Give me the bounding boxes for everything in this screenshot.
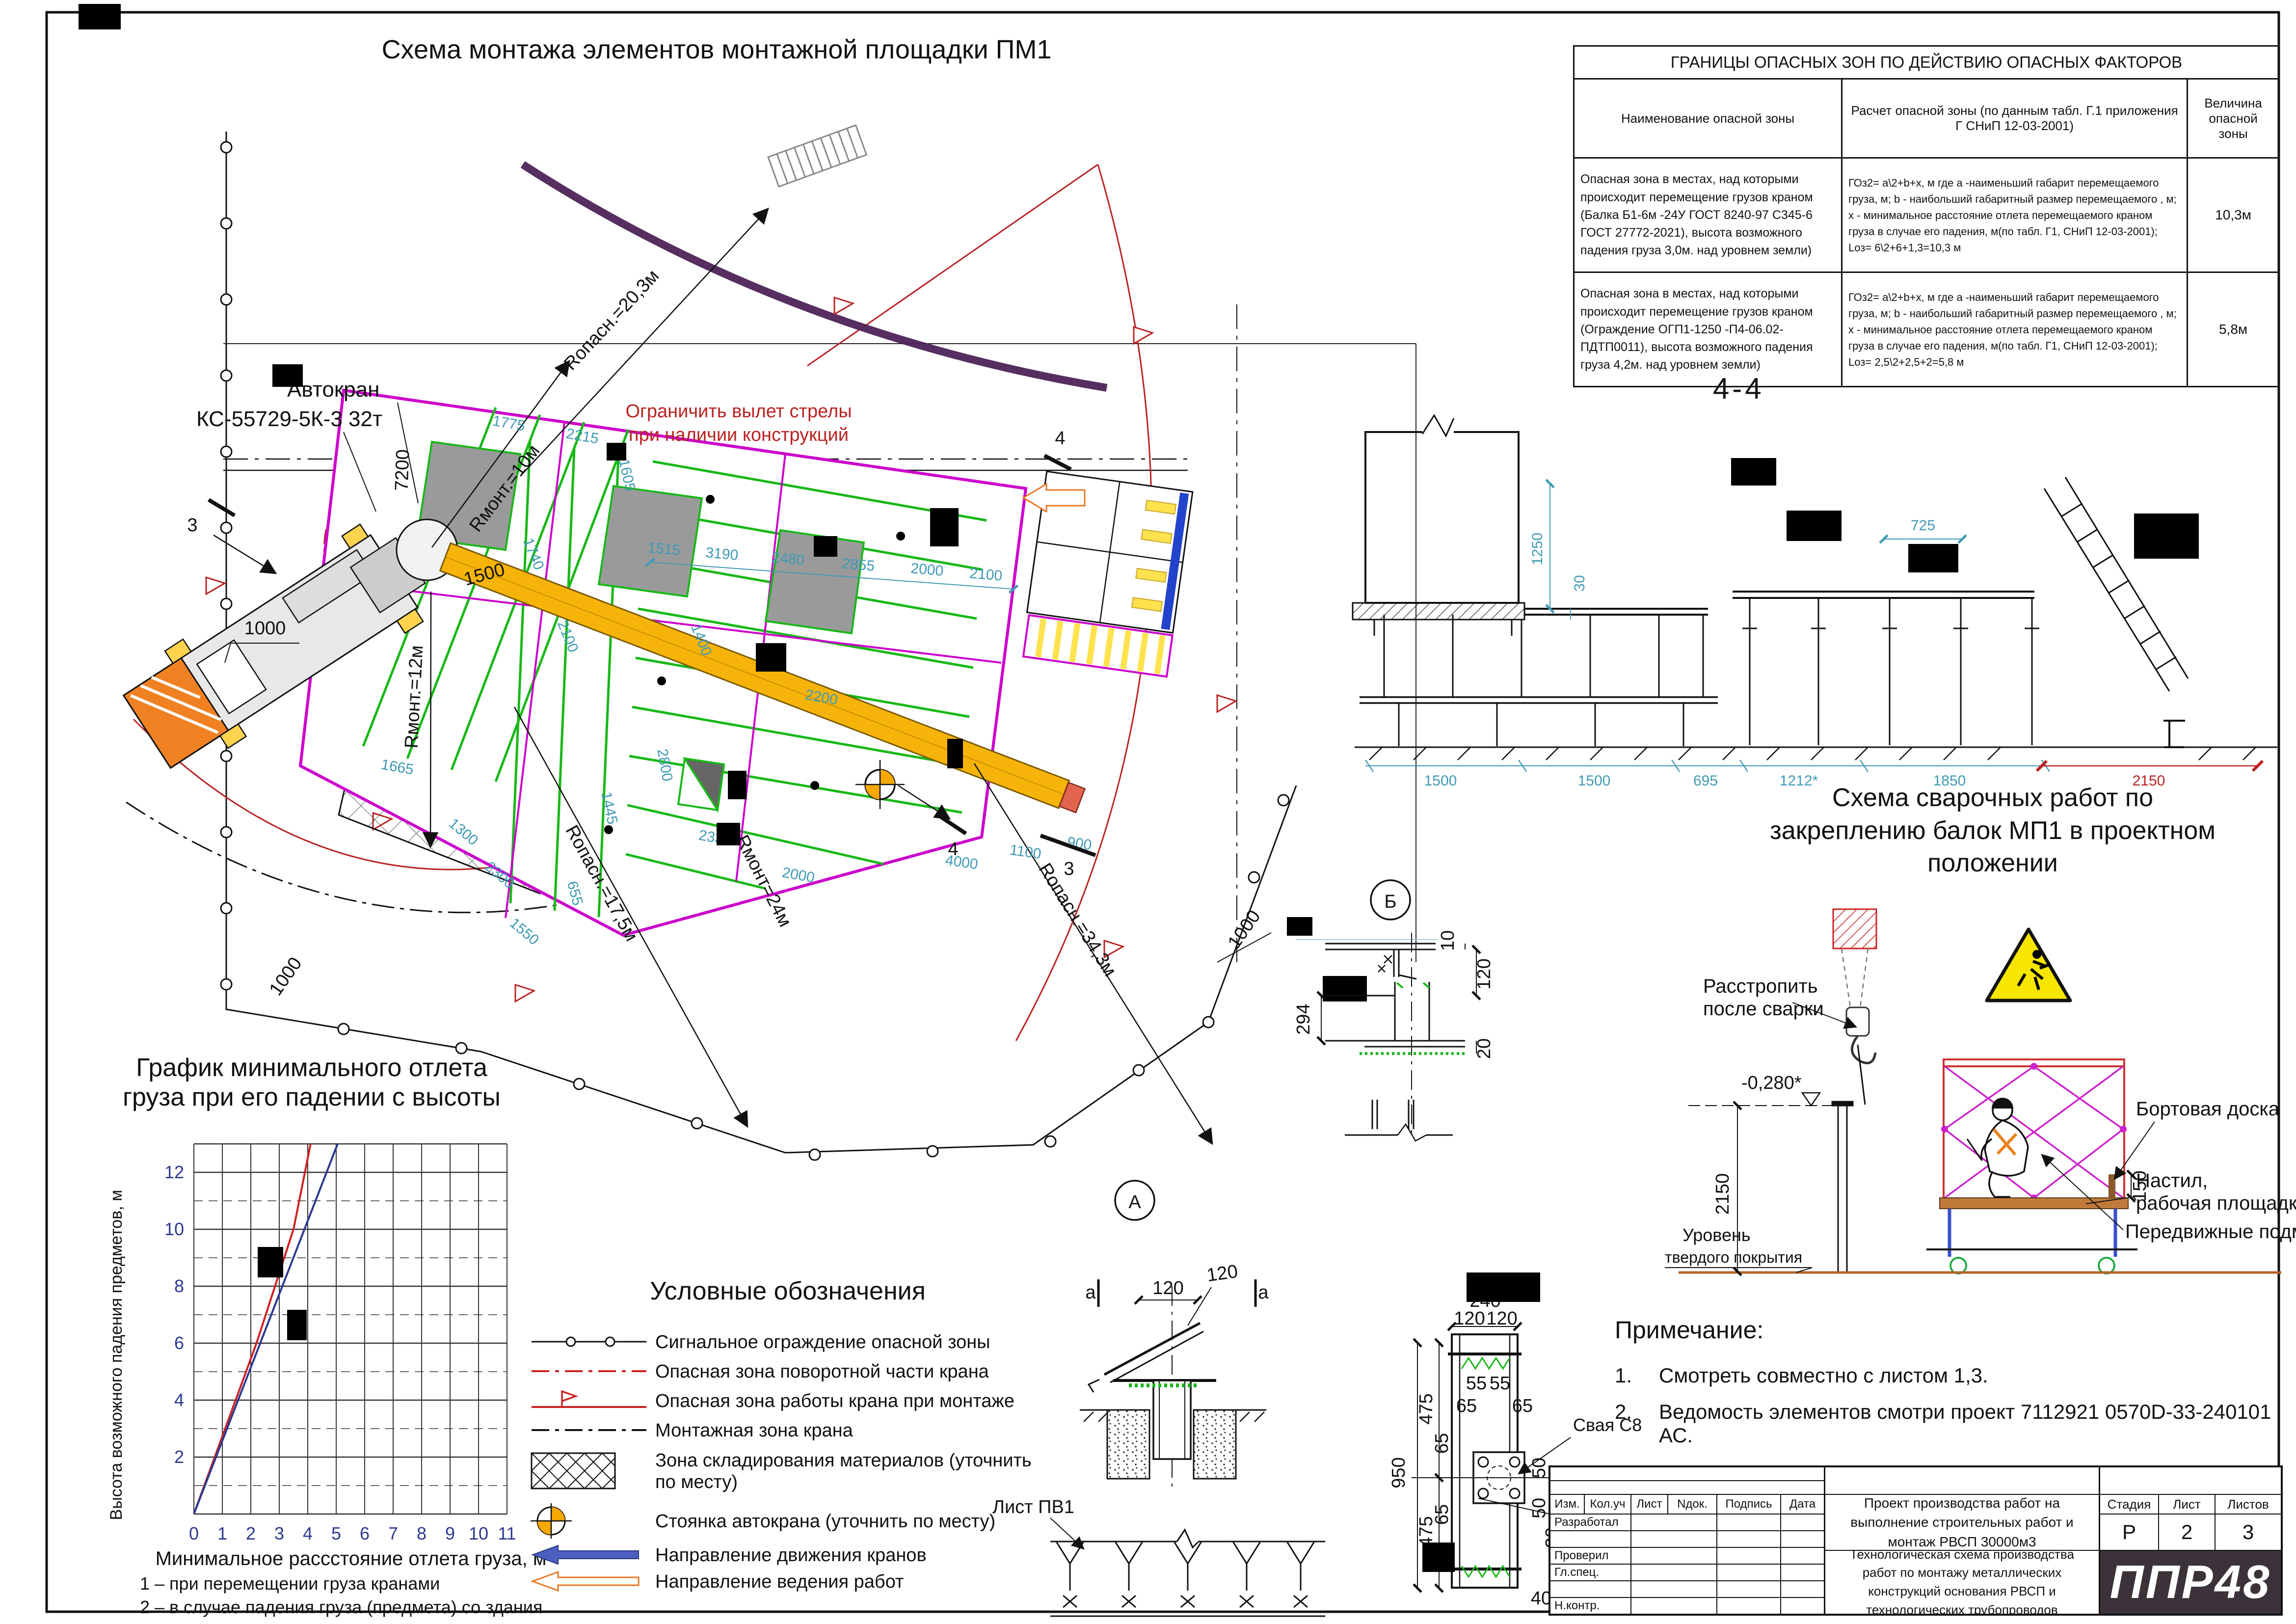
svg-text:3: 3 <box>187 515 197 536</box>
svg-text:8: 8 <box>174 1276 184 1296</box>
svg-text:КС-55729-5К-3 32т: КС-55729-5К-3 32т <box>196 407 382 431</box>
note-number: 1. <box>1615 1364 1659 1387</box>
svg-text:Ограничить вылет стрелы: Ограничить вылет стрелы <box>625 401 852 422</box>
crane-parking-icon <box>528 1502 655 1542</box>
svg-text:20: 20 <box>1474 1038 1495 1059</box>
svg-text:5: 5 <box>331 1523 341 1543</box>
svg-text:120: 120 <box>1205 1261 1239 1286</box>
svg-text:1000: 1000 <box>266 953 306 999</box>
svg-text:120: 120 <box>1152 1278 1183 1299</box>
svg-text:6: 6 <box>360 1523 370 1543</box>
svg-text:725: 725 <box>1911 517 1935 534</box>
tb-col-ndok: Nдок. <box>1668 1495 1717 1515</box>
legend-label: Опасная зона поворотной части крана <box>655 1361 989 1383</box>
storage-zone-icon <box>528 1446 655 1498</box>
danger-zones-table: ГРАНИЦЫ ОПАСНЫХ ЗОН ПО ДЕЙСТВИЮ ОПАСНЫХ … <box>1573 45 2280 387</box>
svg-text:2000: 2000 <box>910 560 944 579</box>
svg-text:Б: Б <box>1385 892 1397 912</box>
tb-row-ncontrol: Н.контр. <box>1550 1598 1631 1614</box>
svg-text:10: 10 <box>1438 930 1458 951</box>
svg-text:55: 55 <box>1466 1373 1487 1394</box>
svg-text:1550: 1550 <box>507 915 542 948</box>
chart-line-building <box>194 1144 338 1514</box>
svg-text:2150: 2150 <box>1712 1173 1733 1215</box>
hook-assembly <box>1833 909 1876 1105</box>
svg-text:10: 10 <box>469 1523 488 1543</box>
svg-text:7: 7 <box>388 1523 398 1543</box>
tb-sheets-value: 3 <box>2216 1515 2281 1551</box>
note-item: 2. Ведомость элементов смотри проект 711… <box>1615 1400 2277 1447</box>
col-header: Расчет опасной зоны (по данным табл. Г.1… <box>1842 79 2188 158</box>
svg-text:2100: 2100 <box>969 565 1003 584</box>
crane-movement-arrow-icon <box>528 1543 655 1570</box>
svg-text:1100: 1100 <box>1009 842 1042 863</box>
crane-swing-zone-icon <box>528 1358 655 1387</box>
svg-text:120: 120 <box>1474 958 1495 989</box>
svg-text:8: 8 <box>417 1523 427 1543</box>
dim-label: Rопасн.=34,3м <box>1035 860 1121 980</box>
tb-col-izm: Изм. <box>1550 1495 1585 1515</box>
montage-zone-icon <box>528 1417 655 1446</box>
svg-text:1000: 1000 <box>244 618 286 639</box>
svg-text:2855: 2855 <box>841 555 875 574</box>
legend-item: Опасная зона работы крана при монтаже <box>528 1388 1015 1415</box>
svg-text:1000: 1000 <box>1224 906 1265 952</box>
tb-row-checked: Проверил <box>1550 1548 1631 1565</box>
svg-text:Передвижные подмости: Передвижные подмости <box>2125 1221 2296 1243</box>
note-text: Смотреть совместно с листом 1,3. <box>1659 1364 1988 1387</box>
legend-label: Сигнальное ограждение опасной зоны <box>655 1332 990 1353</box>
chart-title-line1: График минимального отлета <box>136 1054 487 1082</box>
svg-text:3: 3 <box>274 1523 284 1543</box>
svg-text:3: 3 <box>1064 859 1074 879</box>
chart-title-line2: груза при его падении с высоты <box>123 1083 501 1111</box>
tb-stage-value: Р <box>2100 1515 2159 1551</box>
warning-sign-icon <box>1987 929 2070 1001</box>
detail-b: 10 120 294 20 <box>1287 917 1495 1141</box>
tb-row-developed: Разработал <box>1550 1515 1631 1531</box>
zone-value: 10,3м <box>2188 158 2279 272</box>
svg-text:120: 120 <box>1486 1308 1517 1329</box>
svg-text:120: 120 <box>1454 1308 1485 1329</box>
tb-sheet-label: Лист <box>2159 1495 2216 1515</box>
svg-text:9: 9 <box>445 1523 455 1543</box>
ladder-icon <box>768 125 866 187</box>
svg-text:Уровень: Уровень <box>1682 1225 1751 1245</box>
legend-label: Направление ведения работ <box>655 1571 904 1593</box>
svg-text:12: 12 <box>164 1162 184 1182</box>
danger-zones-table-block: ГРАНИЦЫ ОПАСНЫХ ЗОН ПО ДЕЙСТВИЮ ОПАСНЫХ … <box>1573 45 2280 387</box>
legend-item: Сигнальное ограждение опасной зоны <box>528 1329 990 1356</box>
svg-text:Настил,: Настил, <box>2136 1170 2208 1191</box>
notes-title: Примечание: <box>1615 1316 2277 1344</box>
legend-item: Монтажная зона крана <box>528 1418 853 1444</box>
svg-text:65: 65 <box>1432 1433 1452 1454</box>
svg-text:4: 4 <box>303 1523 313 1543</box>
chart-note-2: 2 – в случае падения груза (предмета) со… <box>140 1597 542 1617</box>
svg-text:55: 55 <box>1490 1373 1510 1394</box>
chart-y-ticks: 2 4 6 8 10 12 <box>164 1162 184 1467</box>
svg-text:475: 475 <box>1416 1393 1437 1424</box>
svg-text:1250: 1250 <box>1529 533 1546 566</box>
title-block: Изм. Кол.уч Лист Nдок. Подпись Дата Разр… <box>1548 1465 2283 1616</box>
table-row: Опасная зона в местах, над которыми прои… <box>1574 272 2279 387</box>
svg-text:50: 50 <box>1529 1458 1549 1478</box>
svg-text:695: 695 <box>1693 773 1718 789</box>
svg-text:3190: 3190 <box>705 544 739 564</box>
col-header: Величина опасной зоны <box>2188 79 2279 158</box>
tb-col-podpis: Подпись <box>1717 1495 1781 1515</box>
plan-title: Схема монтажа элементов монтажной площад… <box>373 34 1060 65</box>
svg-text:1500: 1500 <box>1578 773 1611 789</box>
tb-col-data: Дата <box>1781 1495 1825 1515</box>
tb-stage-label: Стадия <box>2100 1495 2159 1515</box>
svg-text:Расстропить: Расстропить <box>1703 975 1818 997</box>
chart-grid <box>194 1144 507 1514</box>
detail-a-dims: а а 120 120 <box>1085 1261 1269 1326</box>
zone-name: Опасная зона в местах, над которыми прои… <box>1574 272 1842 387</box>
tb-sheet-value: 2 <box>2159 1515 2216 1551</box>
work-direction-arrow-icon <box>528 1569 655 1596</box>
svg-text:-0,280*: -0,280* <box>1741 1073 1802 1093</box>
svg-text:50: 50 <box>1529 1498 1549 1518</box>
svg-text:1500: 1500 <box>1424 773 1457 789</box>
svg-text:2: 2 <box>174 1447 184 1467</box>
chart-note-1: 1 – при перемещении груза кранами <box>140 1573 440 1594</box>
svg-text:2480: 2480 <box>771 549 805 568</box>
legend-item: Зона складирования материалов (уточнить … <box>528 1447 1048 1496</box>
note-item: 1. Смотреть совместно с листом 1,3. <box>1615 1364 2277 1387</box>
zone-name: Опасная зона в местах, над которыми прои… <box>1574 158 1842 272</box>
svg-text:4: 4 <box>174 1390 184 1410</box>
svg-text:а: а <box>1258 1282 1269 1303</box>
legend-block: Условные обозначения Сигнальное огражден… <box>528 1276 1048 1596</box>
legend-item: Опасная зона поворотной части крана <box>528 1359 989 1385</box>
svg-text:А: А <box>1128 1192 1141 1213</box>
company-logo: ППР48 <box>2100 1551 2281 1614</box>
svg-text:30: 30 <box>1572 575 1588 591</box>
welding-title-line: положении <box>1728 847 2258 880</box>
zone-calc: ГОз2= а\2+b+х, м где а -наименьший габар… <box>1842 158 2188 272</box>
note-number: 2. <box>1615 1400 1659 1447</box>
svg-text:4: 4 <box>948 839 958 860</box>
chart-y-label: Высота возможного падения предметов, м <box>107 1190 126 1520</box>
legend-title: Условные обозначения <box>528 1276 1048 1306</box>
svg-text:0: 0 <box>189 1523 199 1543</box>
chart-x-ticks: 01 23 45 67 89 1011 <box>189 1523 516 1543</box>
svg-text:65: 65 <box>1456 1396 1477 1416</box>
tb-row-chief: Гл.спец. <box>1550 1565 1631 1581</box>
svg-text:2: 2 <box>246 1523 256 1543</box>
tb-project-name: Проект производства работ на выполнение … <box>1825 1495 2100 1551</box>
legend-item: Стоянка автокрана (уточнить по месту) <box>528 1503 995 1541</box>
fall-distance-chart: График минимального отлета груза при его… <box>83 1051 555 1623</box>
legend-label: Опасная зона работы крана при монтаже <box>655 1391 1015 1412</box>
welding-title-line: Схема сварочных работ по <box>1728 782 2258 814</box>
legend-label: Монтажная зона крана <box>655 1420 853 1442</box>
svg-text:6: 6 <box>174 1333 184 1353</box>
svg-text:1515: 1515 <box>647 540 681 559</box>
legend-item: Направление ведения работ <box>528 1570 904 1595</box>
welding-labels: Расстропить после сварки -0,280* 2150 Ур… <box>1665 975 2296 1272</box>
zone-calc: ГОз2= а\2+b+х, м где а -наименьший габар… <box>1842 272 2188 387</box>
tb-sheets-label: Листов <box>2216 1495 2281 1515</box>
svg-text:65: 65 <box>1512 1396 1533 1416</box>
signal-fence-icon <box>528 1328 655 1357</box>
section-redactions <box>1731 458 2199 572</box>
legend-item: Направление движения кранов <box>528 1543 927 1568</box>
tb-col-koluch: Кол.уч <box>1585 1495 1631 1515</box>
svg-text:950: 950 <box>1388 1457 1409 1488</box>
legend-label: Стоянка автокрана (уточнить по месту) <box>655 1511 995 1533</box>
welder-figure <box>1967 1098 2028 1197</box>
svg-text:Бортовая доска: Бортовая доска <box>2136 1098 2280 1120</box>
zone-value: 5,8м <box>2188 272 2279 387</box>
boom-limit-note: Ограничить вылет стрелы при наличии конс… <box>625 401 852 445</box>
welding-scheme: Расстропить после сварки -0,280* 2150 Ур… <box>1665 909 2296 1273</box>
detail-markers: А Б <box>1115 880 1410 1220</box>
table-title: ГРАНИЦЫ ОПАСНЫХ ЗОН ПО ДЕЙСТВИЮ ОПАСНЫХ … <box>1574 46 2279 79</box>
svg-text:10: 10 <box>164 1219 184 1239</box>
welding-title-line: закреплению балок МП1 в проектном <box>1728 814 2258 847</box>
svg-text:7200: 7200 <box>392 449 414 491</box>
crane-work-zone-icon <box>528 1387 655 1416</box>
mobile-scaffold <box>1926 1059 2137 1273</box>
tb-col-list: Лист <box>1631 1495 1668 1515</box>
svg-text:1: 1 <box>217 1523 227 1543</box>
svg-text:рабочая площадка: рабочая площадка <box>2136 1192 2296 1214</box>
dim-label: Rопасн.=20,3м <box>560 266 663 374</box>
svg-text:а: а <box>1085 1282 1096 1303</box>
svg-text:11: 11 <box>498 1523 516 1543</box>
svg-text:65: 65 <box>1432 1504 1452 1525</box>
svg-text:при наличии конструкций: при наличии конструкций <box>629 425 849 445</box>
col-header: Наименование опасной зоны <box>1574 79 1842 158</box>
notes-block: Примечание: 1. Смотреть совместно с лист… <box>1615 1316 2277 1447</box>
detail-a: а а 120 120 <box>1080 1261 1269 1492</box>
tb-doc-title: Технологическая схема производства работ… <box>1825 1551 2100 1614</box>
chart-x-label: Минимальное рассстояние отлета груза, м <box>156 1548 547 1570</box>
welding-title: Схема сварочных работ по закреплению бал… <box>1728 782 2258 880</box>
note-text: Ведомость элементов смотри проект 711292… <box>1659 1400 2277 1447</box>
legend-label: Направление движения кранов <box>655 1545 927 1567</box>
svg-text:4: 4 <box>1055 428 1065 449</box>
legend-label: Зона складирования материалов (уточнить … <box>655 1450 1048 1493</box>
svg-text:твердого покрытия: твердого покрытия <box>1665 1248 1802 1266</box>
table-row: Опасная зона в местах, над которыми прои… <box>1574 158 2279 272</box>
svg-text:294: 294 <box>1293 1003 1314 1034</box>
svg-text:после сварки: после сварки <box>1703 998 1824 1020</box>
section-4-4: 4-4 <box>1353 372 2277 789</box>
drawing-sheet: Rопасн.=20,3м Rопасн.=17,5м Rопасн.=34,3… <box>0 0 2296 1624</box>
